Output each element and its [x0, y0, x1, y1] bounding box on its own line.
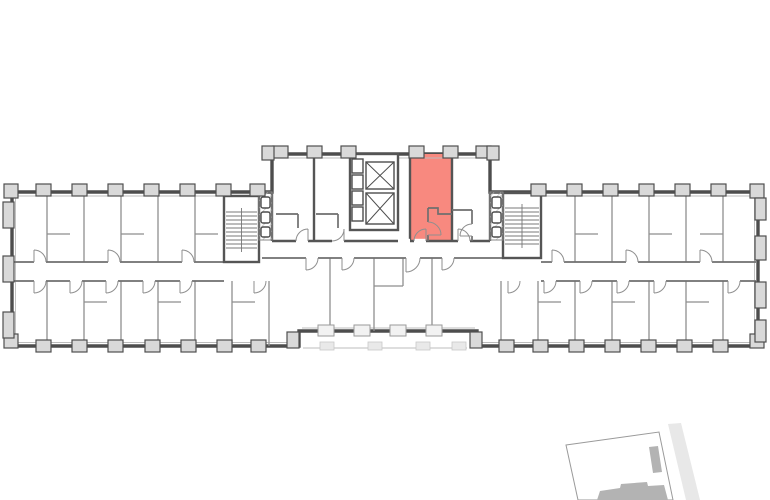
- balcony-hatch-right: [490, 192, 503, 240]
- minimap-road: [668, 423, 700, 500]
- stairwell-left: [224, 196, 259, 262]
- floor-plan-canvas: [0, 0, 770, 500]
- elevator-core: [350, 154, 398, 230]
- stairwell-right: [503, 193, 541, 258]
- balcony-hatch-left: [259, 192, 272, 240]
- site-minimap: [566, 423, 700, 500]
- highlighted-unit[interactable]: [410, 154, 452, 241]
- elevator-shaft-icon: [366, 193, 394, 224]
- elevator-shaft-icon: [366, 162, 394, 189]
- floor-plan-viewer: [0, 0, 770, 500]
